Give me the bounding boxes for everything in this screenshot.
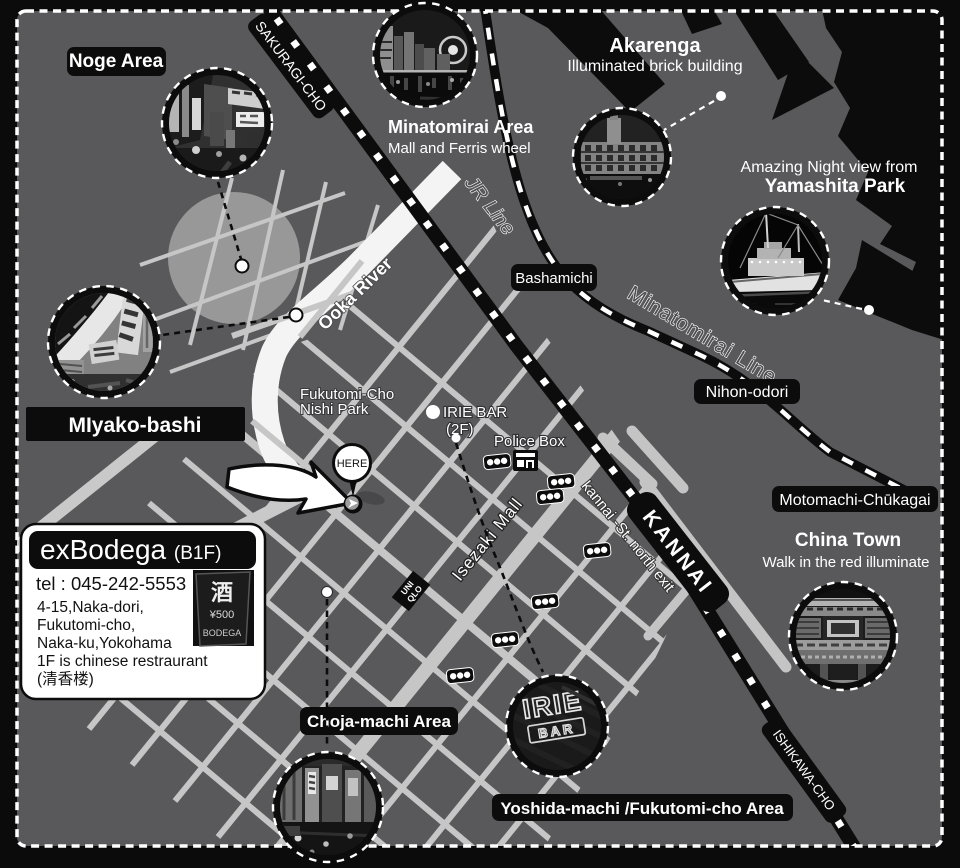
svg-text:Mall and Ferris wheel: Mall and Ferris wheel bbox=[388, 140, 531, 157]
svg-text:Naka-ku,Yokohama: Naka-ku,Yokohama bbox=[37, 635, 172, 652]
svg-text:(2F): (2F) bbox=[446, 421, 474, 438]
svg-text:Akarenga: Akarenga bbox=[609, 35, 701, 57]
svg-text:IRIE BAR: IRIE BAR bbox=[443, 404, 507, 421]
svg-text:China Town: China Town bbox=[795, 530, 901, 551]
svg-text:Walk in the red illuminate: Walk in the red illuminate bbox=[762, 554, 929, 571]
svg-text:(清香楼): (清香楼) bbox=[37, 670, 94, 688]
svg-text:Yamashita Park: Yamashita Park bbox=[765, 176, 906, 197]
svg-text:Amazing Night view from: Amazing Night view from bbox=[741, 159, 918, 176]
svg-text:酒: 酒 bbox=[211, 580, 233, 605]
svg-text:Bashamichi: Bashamichi bbox=[515, 270, 593, 287]
svg-text:Nihon-odori: Nihon-odori bbox=[706, 384, 789, 401]
svg-text:Police Box: Police Box bbox=[494, 433, 565, 450]
svg-text:BODEGA: BODEGA bbox=[203, 628, 242, 638]
svg-text:Illuminated brick building: Illuminated brick building bbox=[567, 58, 742, 75]
svg-text:1F is chinese restraurant: 1F is chinese restraurant bbox=[37, 653, 208, 670]
svg-text:Fukutomi-cho,: Fukutomi-cho, bbox=[37, 617, 135, 634]
svg-text:Yoshida-machi /Fukutomi-cho Ar: Yoshida-machi /Fukutomi-cho Area bbox=[500, 799, 784, 818]
svg-text:HERE: HERE bbox=[337, 458, 368, 470]
svg-text:Noge Area: Noge Area bbox=[69, 51, 164, 72]
svg-text:4-15,Naka-dori,: 4-15,Naka-dori, bbox=[37, 599, 144, 616]
svg-text:Nishi Park: Nishi Park bbox=[300, 401, 369, 418]
svg-text:¥500: ¥500 bbox=[209, 609, 234, 621]
svg-text:Minatomirai Area: Minatomirai Area bbox=[388, 117, 534, 137]
svg-text:Motomachi-Chūkagai: Motomachi-Chūkagai bbox=[779, 492, 930, 509]
svg-text:Choja-machi Area: Choja-machi Area bbox=[307, 712, 451, 731]
svg-text:MIyako-bashi: MIyako-bashi bbox=[68, 414, 201, 437]
svg-text:tel : 045-242-5553: tel : 045-242-5553 bbox=[36, 573, 186, 594]
